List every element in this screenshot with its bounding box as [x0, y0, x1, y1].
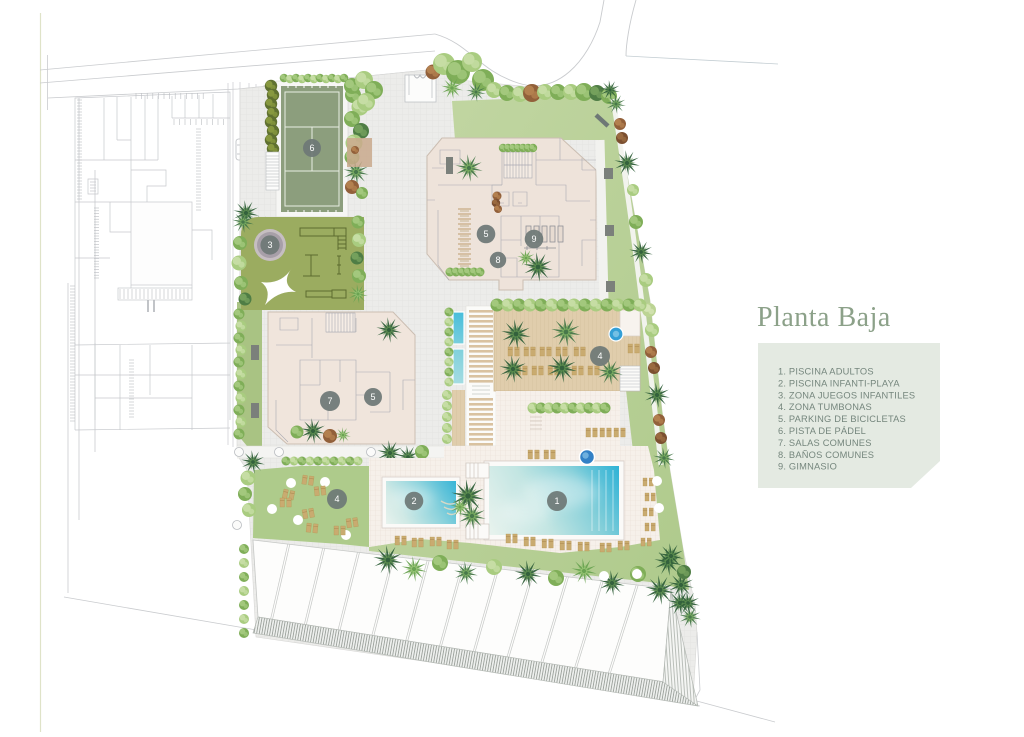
svg-text:5. PARKING DE BICICLETAS: 5. PARKING DE BICICLETAS: [778, 414, 906, 424]
svg-text:9. GIMNASIO: 9. GIMNASIO: [778, 462, 837, 472]
svg-text:8: 8: [495, 255, 500, 265]
svg-text:4. ZONA TUMBONAS: 4. ZONA TUMBONAS: [778, 402, 872, 412]
svg-text:4: 4: [597, 351, 602, 361]
svg-text:5: 5: [483, 229, 488, 239]
svg-text:1: 1: [554, 496, 559, 506]
svg-text:8. BAÑOS COMUNES: 8. BAÑOS COMUNES: [778, 450, 874, 460]
svg-text:7. SALAS COMUNES: 7. SALAS COMUNES: [778, 438, 872, 448]
svg-text:6. PISTA DE PÁDEL: 6. PISTA DE PÁDEL: [778, 426, 866, 436]
svg-text:9: 9: [531, 234, 536, 244]
svg-text:6: 6: [309, 143, 314, 153]
svg-text:3. ZONA JUEGOS INFANTILES: 3. ZONA JUEGOS INFANTILES: [778, 390, 915, 400]
svg-text:7: 7: [327, 396, 332, 406]
svg-text:3: 3: [267, 240, 272, 250]
svg-text:2. PISCINA INFANTI-PLAYA: 2. PISCINA INFANTI-PLAYA: [778, 378, 900, 388]
svg-text:1. PISCINA ADULTOS: 1. PISCINA ADULTOS: [778, 367, 874, 377]
svg-text:4: 4: [334, 494, 339, 504]
svg-text:Planta Baja: Planta Baja: [757, 302, 891, 333]
svg-text:5: 5: [370, 392, 375, 402]
svg-text:2: 2: [411, 496, 416, 506]
